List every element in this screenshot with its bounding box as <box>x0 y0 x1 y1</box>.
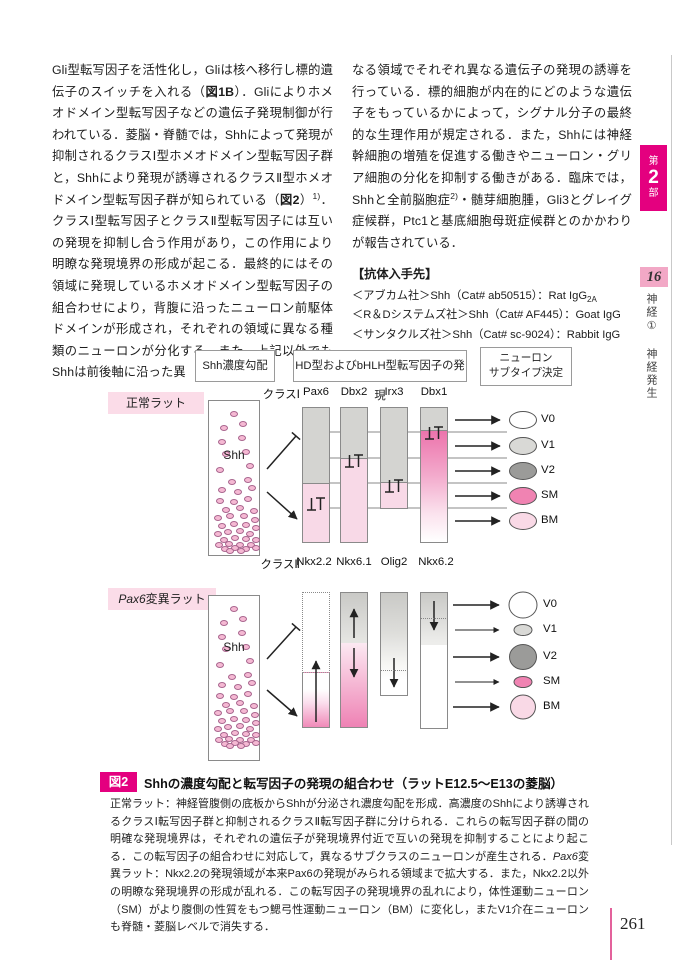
shh-repression-arrow-mutant <box>267 623 300 659</box>
figure-header-neuron-line1: ニューロン <box>481 351 571 366</box>
gene-label-dbx1: Dbx1 <box>410 386 458 398</box>
book-page: Gli型転写因子を活性化し，Gliは核へ移行し標的遺伝子のスイッチを入れる（図1… <box>0 0 680 960</box>
mutant-neuron-ellipse-sm <box>514 677 532 688</box>
page-number: 261 <box>620 914 646 934</box>
pax6-expression-bar <box>302 407 330 484</box>
neuron-label-v1: V1 <box>541 439 555 451</box>
neuron-label-v0: V0 <box>541 413 555 425</box>
nkx62-expression-bar <box>420 430 448 543</box>
part-tab-line3: 部 <box>649 188 659 200</box>
figure-header-neuron-line2: サブタイプ決定 <box>481 366 571 381</box>
body-text-left-column: Gli型転写因子を活性化し，Gliは核へ移行し標的遺伝子のスイッチを入れる（図1… <box>52 60 333 384</box>
mutant-neuron-label-v0: V0 <box>543 598 557 610</box>
mutant-bar3-dotted-boundary <box>380 670 408 671</box>
shh-gradient-tube-mutant <box>208 595 260 761</box>
neuron-subtype-ellipses-normal <box>510 412 537 530</box>
neuron-ellipse-v2 <box>510 463 537 480</box>
neuron-output-arrows-normal <box>455 420 500 521</box>
normal-rat-label: 正常ラット <box>108 392 204 414</box>
mutant-neuron-ellipse-bm <box>511 695 536 719</box>
part-tab-number: 2 <box>648 168 659 188</box>
body-text-right-column: なる領域でそれぞれ異なる遺伝子の発現の誘導を行っている．標的細胞が内在的にどのよ… <box>352 60 632 345</box>
part-tab: 第 2 部 <box>640 145 667 211</box>
shh-activation-arrow-normal <box>267 492 297 519</box>
figure-header-gradient-box: Shh濃度勾配 <box>195 350 275 382</box>
chapter-number-tab: 16 <box>640 267 668 287</box>
figure-header-neuron-box: ニューロン サブタイプ決定 <box>480 347 572 386</box>
mutant-bar2-gray-segment <box>340 592 368 644</box>
figure-number-badge: 図2 <box>100 772 137 792</box>
mutant-bar3-fading-segment <box>380 592 408 696</box>
figure-caption-title: Shhの濃度勾配と転写因子の発現の組合わせ（ラットE12.5～E13の菱脳） <box>144 773 563 792</box>
chapter-title-part2: 神経発生 <box>645 348 657 400</box>
neuron-output-arrows-mutant <box>453 605 499 707</box>
page-number-rule <box>610 908 612 960</box>
mutant-neuron-ellipse-v1 <box>514 625 532 636</box>
nkx22-expanded-expression-bar <box>302 672 330 728</box>
antibody-heading: 【抗体入手先】 <box>352 265 632 285</box>
neuron-label-v2: V2 <box>541 464 555 476</box>
neuron-ellipse-bm <box>510 513 537 530</box>
mutant-neuron-label-bm: BM <box>543 700 560 712</box>
page-edge-line <box>671 55 672 845</box>
shh-gradient-tube-normal <box>208 400 260 556</box>
antibody-source-block: 【抗体入手先】 ＜アブカム社＞Shh（Cat# ab50515）：Rat IgG… <box>352 265 632 345</box>
figure-caption-body: 正常ラット：神経管腹側の底板からShhが分泌され濃度勾配を形成．高濃度のShhに… <box>110 796 589 937</box>
neuron-ellipse-v0 <box>510 412 537 429</box>
dbx1-expression-bar <box>420 407 448 431</box>
mutant-neuron-label-v2: V2 <box>543 650 557 662</box>
gene-label-olig2: Olig2 <box>370 556 418 568</box>
pax6-mutant-rat-label: Pax6変異ラット <box>108 588 216 610</box>
shh-repression-arrow-normal <box>267 432 300 469</box>
antibody-line: ＜R＆Dシステムズ社＞Shh（Cat# AF445）：Goat IgG <box>352 306 632 326</box>
mutant-bar4-dotted-boundary <box>420 618 448 619</box>
gene-label-nkx62: Nkx6.2 <box>412 556 460 568</box>
neuron-label-sm: SM <box>541 489 558 501</box>
shh-label-mutant: Shh <box>208 640 260 654</box>
mutant-bar2-pink-segment <box>340 643 368 728</box>
chapter-title-vertical: 神経①神経発生 <box>643 293 659 400</box>
shh-activation-arrow-mutant <box>267 690 297 716</box>
shh-label-normal: Shh <box>208 448 260 462</box>
mutant-neuron-label-v1: V1 <box>543 623 557 635</box>
chapter-title-part1: 神経① <box>645 293 657 334</box>
nkx22-expression-bar <box>302 483 330 543</box>
mutant-neuron-label-sm: SM <box>543 675 560 687</box>
neuron-ellipse-v1 <box>510 438 537 455</box>
pax6-lost-expression-bar <box>302 592 330 673</box>
figure-header-expression-box: HD型およびbHLH型転写因子の発現 <box>293 350 467 382</box>
neuron-ellipse-sm <box>510 488 537 505</box>
irx3-expression-bar <box>380 407 408 483</box>
mutant-bar4-empty-segment <box>420 645 448 729</box>
antibody-line: ＜アブカム社＞Shh（Cat# ab50515）：Rat IgG2A <box>352 287 632 307</box>
mutant-neuron-ellipse-v0 <box>509 592 537 618</box>
expression-change-arrows <box>316 601 434 722</box>
neuron-label-bm: BM <box>541 514 558 526</box>
neuron-subtype-ellipses-mutant <box>509 592 537 719</box>
olig2-expression-bar <box>380 482 408 509</box>
mutant-bar4-gray-segment <box>420 592 448 646</box>
antibody-line: ＜サンタクルズ社＞Shh（Cat# sc-9024）：Rabbit IgG <box>352 326 632 346</box>
nkx61-expression-bar <box>340 458 368 543</box>
mutant-neuron-ellipse-v2 <box>510 645 537 670</box>
dbx2-expression-bar <box>340 407 368 459</box>
body-text-right-paragraph: なる領域でそれぞれ異なる遺伝子の発現の誘導を行っている．標的細胞が内在的にどのよ… <box>352 60 632 254</box>
